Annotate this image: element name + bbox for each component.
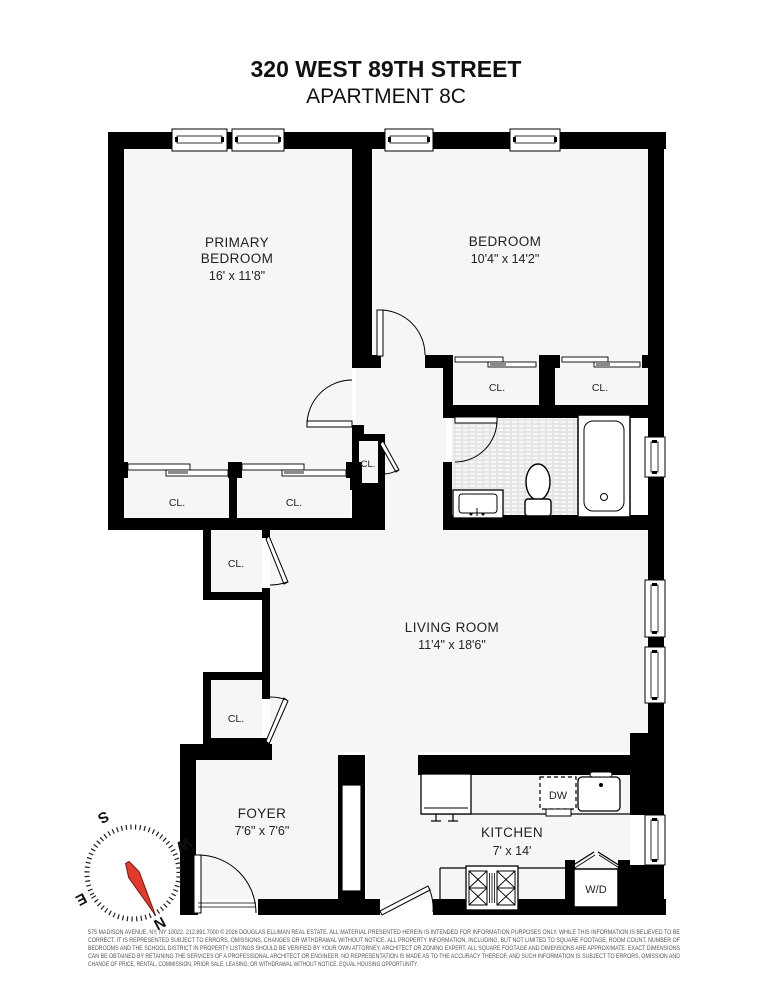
wall-segment [418, 755, 664, 775]
wall-segment [228, 462, 242, 478]
bathtub-icon [578, 415, 630, 517]
living-room-label: LIVING ROOM [405, 620, 499, 635]
wall-segment [372, 355, 381, 368]
compass-needle-icon [122, 860, 161, 919]
compass-east-label: E [73, 889, 90, 909]
disclaimer-line: CHANGE OF PRICE, RENTAL, COMMISSION, PRI… [88, 962, 418, 968]
wall-segment [539, 368, 555, 405]
window-icon [645, 647, 665, 703]
primary-bedroom-label: BEDROOM [201, 251, 274, 266]
wall-segment [352, 425, 364, 435]
window-icon [645, 437, 665, 477]
wall-segment [352, 149, 372, 368]
wall-segment [108, 518, 362, 530]
window-recess [630, 437, 646, 477]
closet-label: CL. [228, 713, 244, 725]
wall-segment [108, 462, 128, 478]
wall-segment [642, 355, 648, 368]
disclaimer: 575 MADISON AVENUE, NY, NY 10022. 212.89… [88, 929, 681, 968]
disclaimer-line: CORRECT, IT IS REPRESENTED SUBJECT TO ER… [88, 938, 680, 944]
compass-south-label: S [95, 807, 112, 827]
closet-label: CL. [228, 558, 244, 570]
bedroom-dims: 10'4" x 14'2" [471, 252, 540, 266]
primary-bedroom-label: PRIMARY [205, 235, 269, 250]
refrigerator-icon [421, 774, 471, 821]
window-icon [510, 129, 560, 151]
wall-segment [229, 478, 237, 518]
disclaimer-line: 575 MADISON AVENUE, NY, NY 10022. 212.89… [88, 929, 680, 936]
kitchen-dims: 7' x 14' [493, 844, 532, 858]
foyer-dims: 7'6" x 7'6" [235, 824, 290, 838]
closet-label: CL. [286, 497, 302, 509]
window-recess [630, 815, 646, 865]
disclaimer-line: BEDROOMS AND THE SCHOOL DISTRICT IN PROP… [88, 946, 680, 952]
hall-closet2-floor [210, 680, 262, 738]
sink-vanity-icon [453, 490, 503, 518]
living-room-dims: 11'4" x 18'6" [418, 638, 486, 652]
wall-segment [203, 672, 270, 680]
toilet-icon [525, 464, 551, 516]
window-icon [645, 815, 665, 865]
pocket-door-panel [342, 785, 361, 891]
wall-segment [346, 462, 354, 478]
floorplan-canvas: 320 WEST 89TH STREET APARTMENT 8C [0, 0, 773, 1000]
foyer-label: FOYER [238, 806, 287, 821]
primary-bedroom-floor [124, 149, 352, 462]
washer-dryer-label: W/D [585, 884, 606, 896]
wall-segment [258, 899, 346, 915]
window-icon [385, 129, 433, 151]
disclaimer-line: CAN BE OBTAINED BY RETAINING THE SERVICE… [88, 954, 681, 960]
bedroom-label: BEDROOM [469, 234, 542, 249]
primary-bedroom-dims: 16' x 11'8" [209, 269, 265, 283]
closet-label: CL. [489, 382, 505, 394]
wall-segment [346, 899, 380, 915]
kitchen-label: KITCHEN [481, 825, 543, 840]
dishwasher-label: DW [549, 790, 568, 802]
window-icon [645, 580, 665, 637]
wall-segment [203, 530, 211, 600]
wall-segment [539, 355, 560, 368]
living-foyer-opening-floor [270, 744, 340, 762]
closet-label: CL. [592, 382, 608, 394]
window-icon [232, 129, 284, 151]
closet-label: CL. [169, 497, 185, 509]
stove-icon [466, 866, 518, 910]
wall-segment [203, 676, 211, 746]
window-icon [172, 129, 227, 151]
wall-segment [262, 598, 270, 676]
living-kitchen-opening-floor [367, 752, 418, 775]
page-title: 320 WEST 89TH STREET [251, 56, 522, 82]
wall-segment [203, 592, 270, 600]
wall-segment [262, 672, 270, 699]
closet-label: CL. [361, 459, 376, 470]
page-subtitle: APARTMENT 8C [306, 85, 466, 108]
floorplan-page: 320 WEST 89TH STREET APARTMENT 8C [0, 0, 773, 1000]
kitchen-sink-icon [578, 772, 620, 811]
wall-segment [443, 462, 452, 515]
bedroom-door-opening-floor [381, 355, 425, 368]
